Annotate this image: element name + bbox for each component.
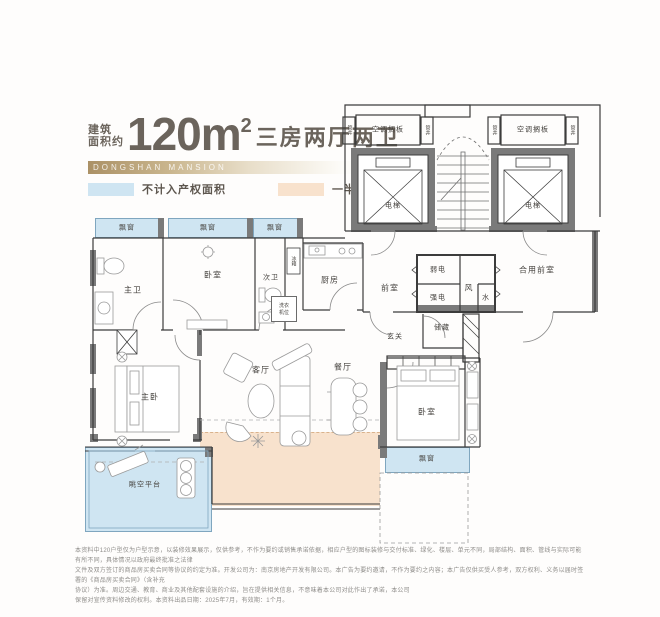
label-front-room: 前室 [381,284,399,293]
label-water: 水 [482,294,490,303]
label-bay-window-1: 飘窗 [119,224,135,233]
right-bed [397,366,459,440]
label-elevator-right: 电梯 [525,202,541,211]
disclaimer: 本资料中120户型仅为户型示意，以装修效果展示，仅供参考，不作为要约或销售承诺依… [75,546,587,606]
label-weak-power: 弱电 [430,266,446,275]
armchair-1 [223,352,254,383]
label-bay-window-right: 飘窗 [419,455,435,464]
disclaimer-line-1: 本资料中120户型仅为户型示意，以装修效果展示，仅供参考，不作为要约或销售承诺依… [75,546,587,566]
label-duct-2: 管井 [425,125,430,135]
label-duct-4: 管井 [570,125,575,135]
label-vent: 风 [465,284,474,293]
label-master-bedroom: 主卧 [141,393,159,402]
label-elevator-left: 电梯 [385,202,401,211]
label-entry: 玄关 [387,333,403,342]
planter-pots [177,458,195,498]
label-dining-room: 餐厅 [334,363,352,372]
kitchen-counter [304,244,362,258]
washer-position: 洗衣 机位 [271,296,297,322]
dining-table [327,378,367,435]
label-washer-line1: 洗衣 [272,303,296,310]
sofa [271,343,313,446]
wardrobe [467,362,478,444]
toilet-master [97,258,124,274]
disclaimer-line-3: 协议）为准。周边交通、教育、商业及其他配套设施的介绍，旨在提供相关信息，不意味着… [75,586,587,596]
staircase [437,137,489,230]
label-duct-1: 管井 [347,125,352,135]
ceiling-light [201,245,215,259]
floor-plan: 空调搁板 空调搁板 管井 管井 管井 管井 电梯 电梯 飘窗 飘窗 飘窗 主卫 … [75,100,615,555]
label-fridge: 冰箱 [291,256,296,266]
disclaimer-line-2: 文件及双方签订的商品房买卖合同等协议的约定为准。开发公司为：南京房地产开发有限公… [75,566,587,586]
bench [187,320,227,329]
vanity-master [95,292,113,324]
plant [251,434,265,448]
label-second-bath: 次卫 [263,274,279,283]
label-ac-shelf-right: 空调搁板 [517,126,549,135]
label-bedroom-top: 卧室 [204,271,222,280]
label-storage: 储藏 [434,324,450,333]
elevator-left [351,148,435,230]
label-washer-line2: 机位 [272,310,296,317]
side-stool [292,431,306,445]
label-shared-front-room: 合用前室 [519,266,555,275]
label-bay-window-3: 飘窗 [267,224,283,233]
elevator-right [491,148,575,230]
label-bedroom-right: 卧室 [418,408,436,417]
coffee-table [248,384,274,418]
label-kitchen: 厨房 [321,276,339,285]
armchair-2 [226,422,251,442]
floorplan-page: 建筑 面积约 120m2 三房两厅两卫 DONGSHAN MANSION 不计入… [0,0,660,617]
label-duct-3: 管井 [492,125,497,135]
label-bay-window-2: 飘窗 [200,224,216,233]
label-ac-shelf-left: 空调搁板 [372,126,404,135]
label-sky-platform: 眺空平台 [129,481,161,490]
lounge-chair [95,445,149,477]
label-strong-power: 强电 [430,294,446,303]
label-master-bath: 主卫 [124,286,142,295]
disclaimer-line-4: 保留对宣传资料修改的权利。本资料出品日期：2025年7月，有效期：1个月。 [75,596,587,606]
label-living-room: 客厅 [252,366,270,375]
